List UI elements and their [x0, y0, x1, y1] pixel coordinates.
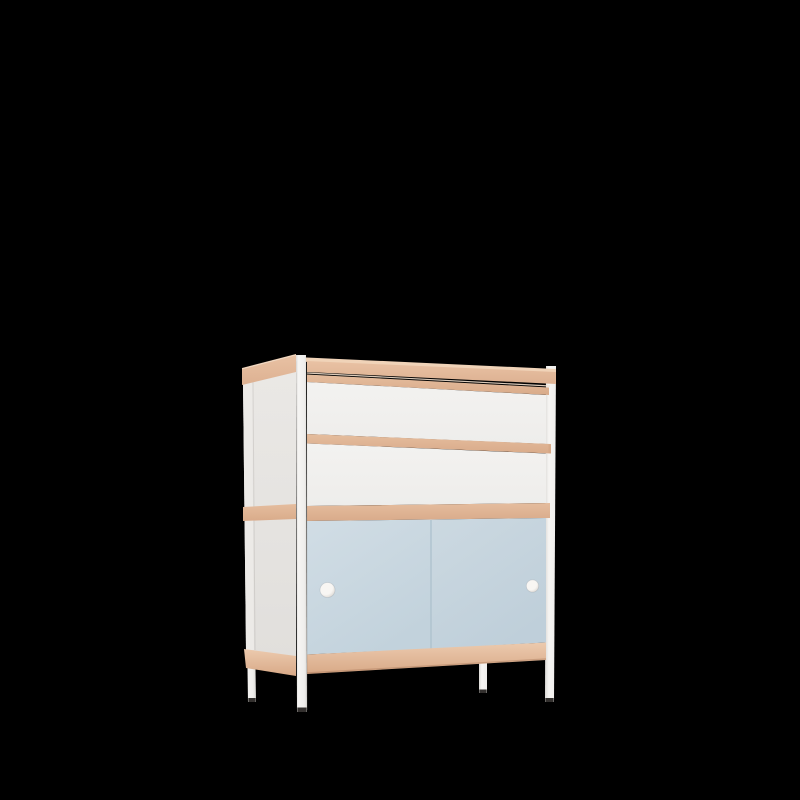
foot-cap-rear-left: [248, 698, 255, 702]
shelf-rail: [307, 503, 550, 521]
foot-cap-rear-right: [479, 690, 486, 694]
cabinet-render: [0, 0, 800, 800]
foot-cap-front-left: [297, 708, 306, 713]
render-stage: [0, 0, 800, 800]
cabinet-front: [296, 357, 556, 674]
door-handle-right: [526, 580, 538, 592]
side-panel: [242, 354, 296, 676]
drawer-divider-rail-end: [549, 444, 552, 453]
foot-cap-front-right: [545, 698, 553, 702]
drawer-lower: [307, 444, 546, 507]
leg-front-left: [296, 355, 307, 712]
door-handle-left: [320, 583, 335, 598]
